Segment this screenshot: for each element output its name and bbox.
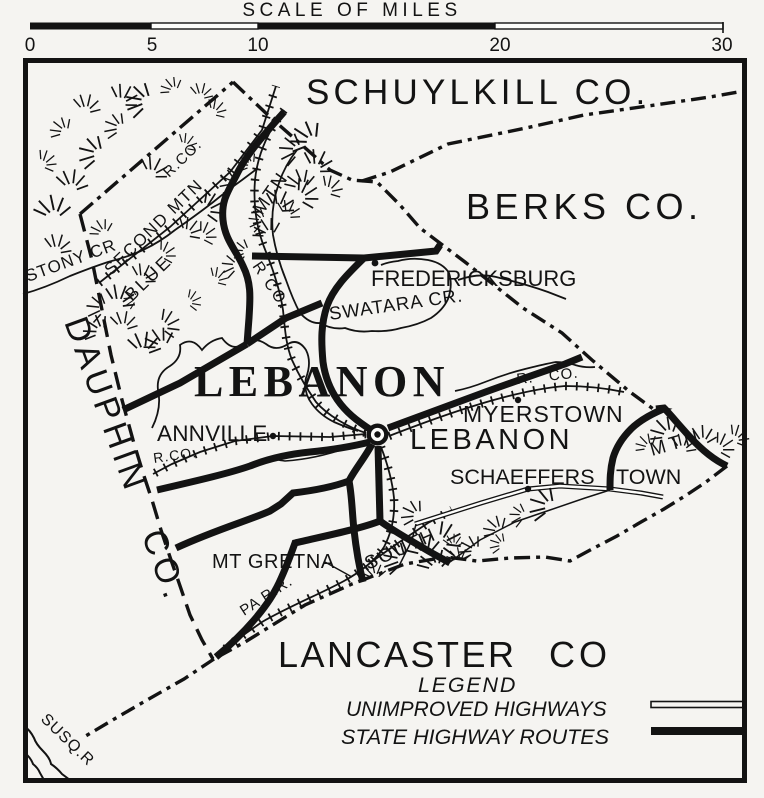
svg-text:SCHAEFFERS: SCHAEFFERS [450,465,595,489]
svg-text:ANNVILLE: ANNVILLE [157,421,267,446]
svg-text:10: 10 [247,35,268,56]
svg-text:LANCASTER: LANCASTER [278,634,517,675]
svg-text:FREDERICKSBURG: FREDERICKSBURG [371,266,576,291]
svg-text:LEBANON: LEBANON [410,424,573,456]
svg-text:BERKS CO.: BERKS CO. [466,186,703,227]
svg-text:5: 5 [147,35,158,56]
svg-text:30: 30 [711,35,732,56]
svg-text:SCALE OF MILES: SCALE OF MILES [242,0,461,21]
svg-text:20: 20 [489,35,510,56]
svg-text:TOWN: TOWN [616,465,681,489]
svg-text:SCHUYLKILL CO.: SCHUYLKILL CO. [306,73,649,112]
svg-text:0: 0 [25,35,36,56]
svg-text:CO: CO [549,634,611,675]
svg-text:MT GRETNA: MT GRETNA [212,551,335,573]
svg-text:STATE HIGHWAY ROUTES: STATE HIGHWAY ROUTES [341,725,610,749]
svg-text:LEBANON: LEBANON [194,357,450,406]
svg-text:LEGEND: LEGEND [418,673,517,697]
svg-text:UNIMPROVED HIGHWAYS: UNIMPROVED HIGHWAYS [346,698,607,721]
